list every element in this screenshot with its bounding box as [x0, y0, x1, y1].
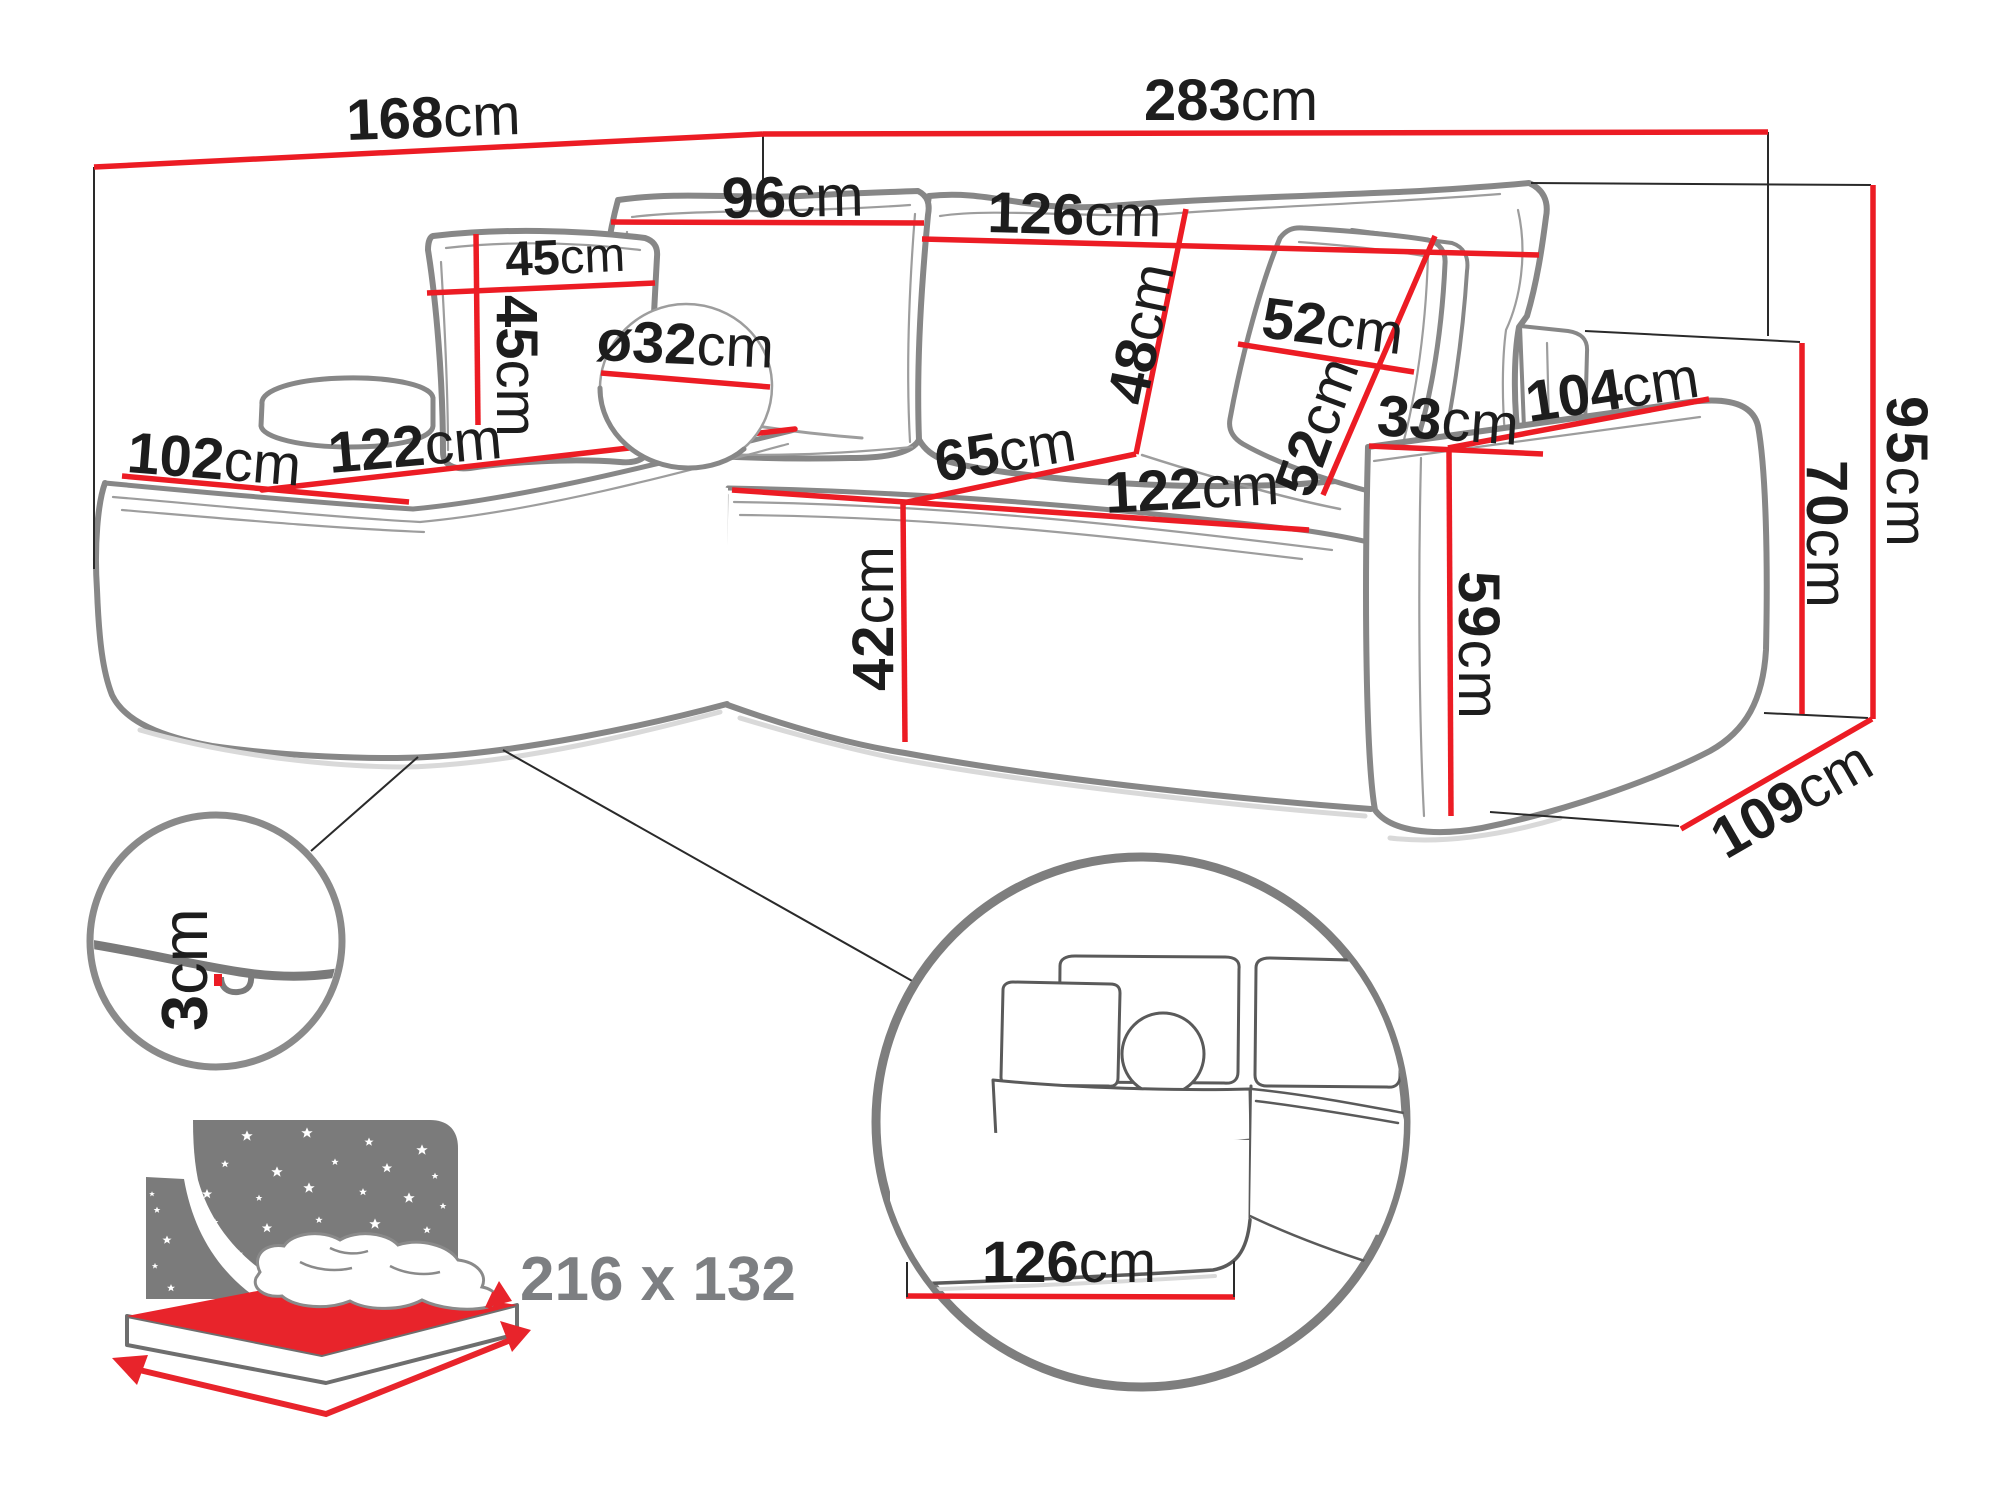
svg-text:122cm: 122cm	[1103, 452, 1280, 526]
svg-text:102cm: 102cm	[125, 420, 304, 498]
svg-text:168cm: 168cm	[345, 82, 521, 153]
svg-text:70cm: 70cm	[1794, 460, 1859, 610]
svg-text:3cm: 3cm	[148, 908, 221, 1031]
svg-text:33cm: 33cm	[1375, 383, 1521, 458]
svg-text:126cm: 126cm	[987, 180, 1163, 250]
svg-text:126cm: 126cm	[982, 1230, 1156, 1295]
svg-text:283cm: 283cm	[1144, 68, 1318, 133]
svg-text:96cm: 96cm	[721, 164, 864, 231]
svg-text:95cm: 95cm	[1874, 396, 1939, 550]
svg-text:42cm: 42cm	[841, 545, 906, 691]
svg-text:45cm: 45cm	[504, 228, 626, 287]
svg-text:ø32cm: ø32cm	[595, 308, 775, 381]
svg-text:59cm: 59cm	[1446, 571, 1511, 721]
svg-text:216 x 132: 216 x 132	[520, 1245, 796, 1314]
